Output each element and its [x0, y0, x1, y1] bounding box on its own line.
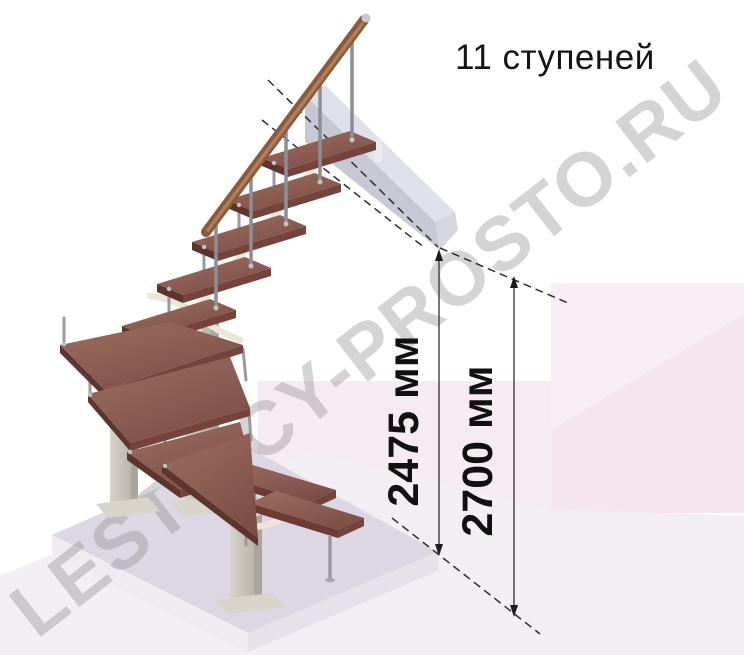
leg-foot [325, 578, 335, 582]
landing-left-face [305, 95, 440, 250]
staircase-diagram: LESTNICY-PROSTO.RU [0, 0, 744, 655]
handrail-metal-cap [362, 14, 371, 23]
staircase-scene: LESTNICY-PROSTO.RU [0, 0, 744, 655]
tread-8 [157, 257, 271, 303]
dimension-label-2475: 2475 мм [380, 335, 428, 506]
landing-platform [305, 85, 458, 250]
figure-title: 11 ступеней [455, 38, 715, 78]
dimension-label-2700: 2700 мм [454, 365, 502, 536]
